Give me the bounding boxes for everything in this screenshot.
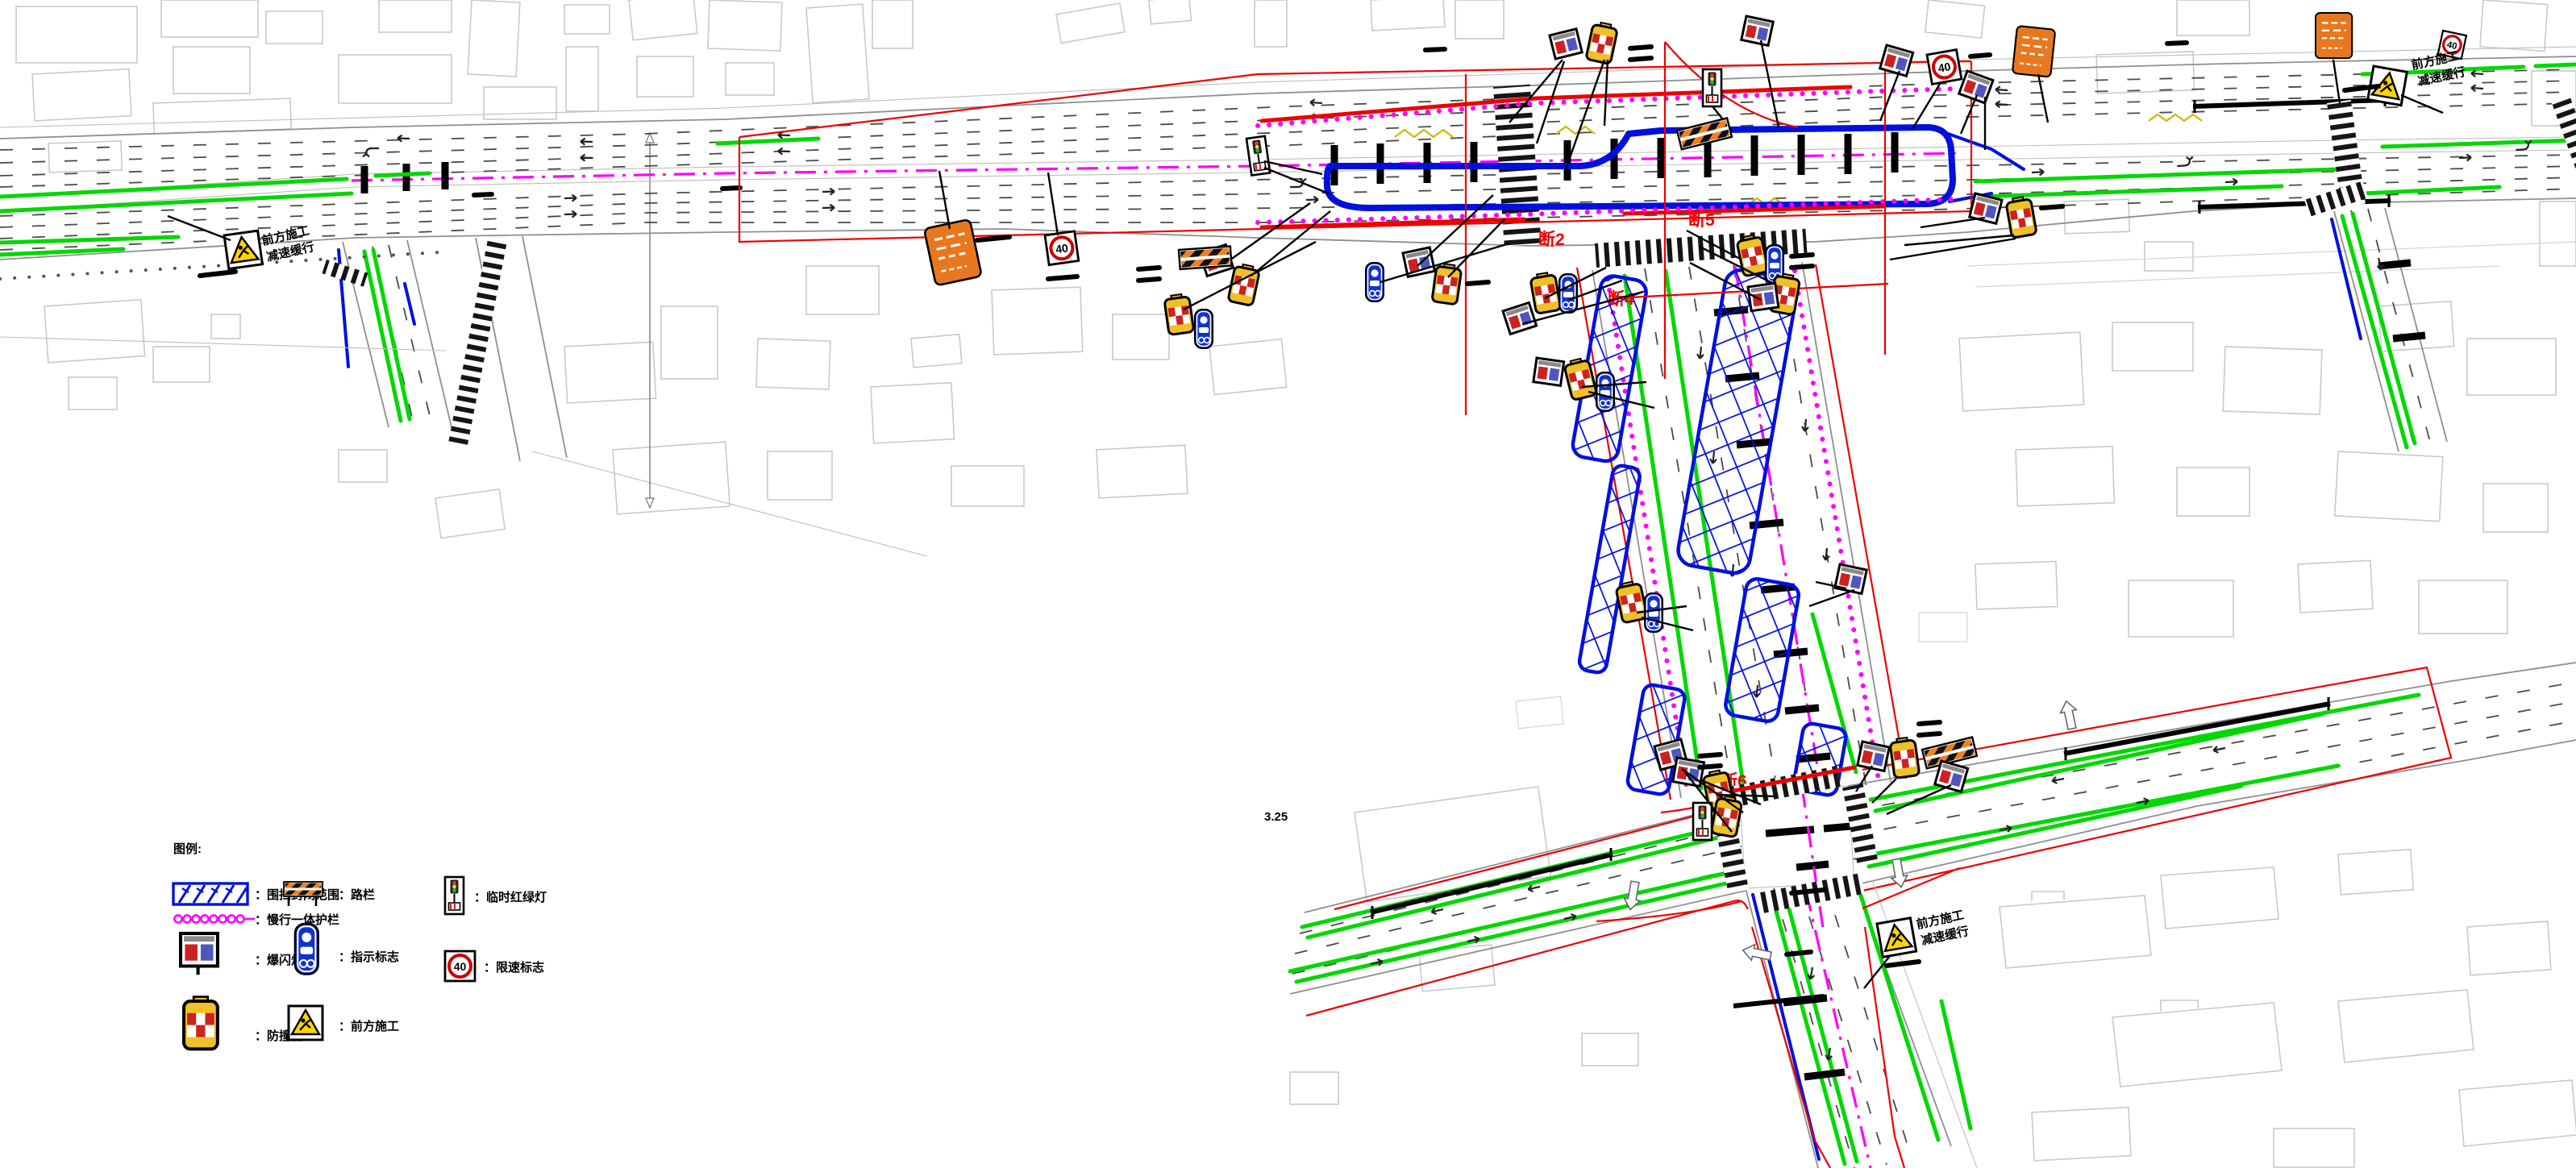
strobe-light-icon xyxy=(1503,302,1537,334)
legend-item-crash-barrel: ：防撞桶 xyxy=(184,997,303,1050)
crash-barrel-icon xyxy=(1432,263,1462,305)
guide-sign-icon xyxy=(1596,372,1614,411)
crash-barrel-icon xyxy=(1615,580,1647,623)
construction-warning-sign xyxy=(224,231,262,268)
strobe-light-icon xyxy=(1550,29,1582,59)
section-label-5: 断5 xyxy=(1688,210,1715,230)
speed-limit-sign xyxy=(1927,50,1962,85)
strobe-light-icon xyxy=(1403,247,1434,276)
legend-item-temp-signal: ：临时红绿灯 xyxy=(445,877,547,914)
legend-label: ：路栏 xyxy=(339,887,375,902)
guide-sign-icon xyxy=(1559,274,1577,313)
legend-label: ：临时红绿灯 xyxy=(474,890,547,904)
crash-barrel-icon xyxy=(1586,21,1618,64)
guide-sign-icon xyxy=(1195,310,1213,348)
strobe-light-icon xyxy=(1858,742,1889,771)
traffic-plan-drawing: 40 xyxy=(0,0,2576,1168)
legend-label: ：前方施工 xyxy=(339,1019,399,1033)
red-boundaries: 断2 断5 断4 断6 xyxy=(739,42,1971,791)
legend: 图例: ：围挡封闭范围 ：慢行一体护栏 ：爆闪灯 ：防撞桶 ：路栏 ：指示标志 xyxy=(173,842,547,1049)
legend-item-speed-limit: ：限速标志 xyxy=(445,951,544,981)
temp-signal-icon xyxy=(1703,69,1721,106)
vertical-road xyxy=(1493,85,1906,800)
right-intersection xyxy=(2304,97,2576,451)
section-label-2: 断2 xyxy=(1538,230,1565,249)
crash-barrel-icon xyxy=(1163,293,1193,335)
legend-label: ：慢行一体护栏 xyxy=(255,912,339,927)
legend-label: ：限速标志 xyxy=(484,960,544,975)
side-roads xyxy=(0,133,927,556)
construction-board xyxy=(2316,13,2352,58)
elevation-label: 3.25 xyxy=(1264,810,1288,824)
strobe-light-icon xyxy=(1835,564,1866,593)
guide-sign-icon xyxy=(1645,593,1663,632)
legend-item-guide-sign: ：指示标志 xyxy=(295,924,399,974)
strobe-light-icon xyxy=(1534,358,1564,385)
speed-limit-sign xyxy=(1045,231,1079,265)
map-canvas: 40 xyxy=(0,0,2576,1168)
road-barrier-icon xyxy=(1179,247,1232,269)
road-barrier-icon xyxy=(1677,118,1732,150)
device-clusters xyxy=(924,13,2466,840)
section-label-4: 断4 xyxy=(1608,289,1634,309)
crash-barrel-icon xyxy=(1889,737,1919,779)
legend-item-strobe-light: ：爆闪灯 xyxy=(181,933,303,975)
legend-title: 图例: xyxy=(173,842,202,856)
strobe-light-icon xyxy=(1748,283,1779,310)
legend-label: ：指示标志 xyxy=(339,950,399,964)
main-enclosure xyxy=(1327,127,2024,208)
crash-barrel-icon xyxy=(2005,196,2037,239)
strobe-light-icon xyxy=(1742,16,1773,45)
construction-board xyxy=(2012,26,2055,77)
temp-signal-icon xyxy=(1693,803,1712,840)
enclosure-hatch-zones xyxy=(1571,268,1847,796)
legend-item-construction-ahead: ：前方施工 xyxy=(289,1006,399,1040)
construction-warning-sign xyxy=(1877,918,1916,958)
